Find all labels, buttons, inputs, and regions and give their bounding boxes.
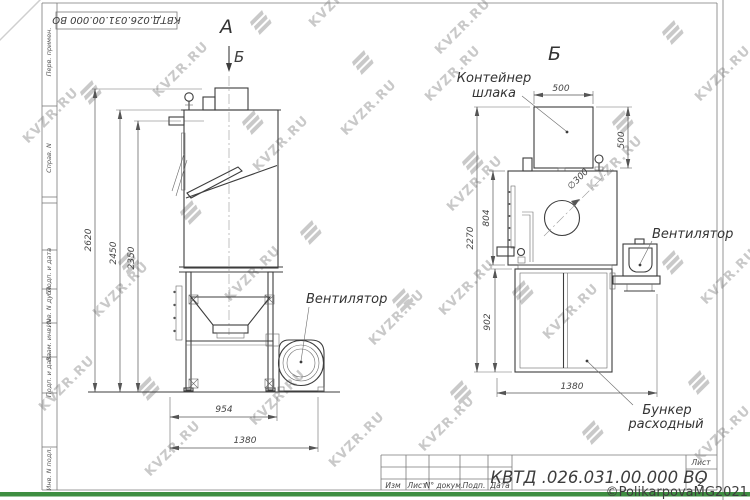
watermark-text: KVZR.RU xyxy=(436,257,498,319)
section-arrow: Б xyxy=(226,46,244,72)
watermark-logo-icon xyxy=(248,10,273,35)
boiler-side-outline xyxy=(88,88,340,392)
watermark-text: KVZR.RU xyxy=(247,367,309,429)
dim-500-top: 500 xyxy=(552,84,569,94)
dim-1380-left: 1380 xyxy=(234,436,257,446)
bunker-callout: Бункер расходный xyxy=(586,360,704,432)
tb-col-docnum: N° докум. xyxy=(425,481,464,490)
watermark-logo-icon xyxy=(350,50,375,75)
dim-2270: 2270 xyxy=(466,226,476,249)
container-label-line2: шлака xyxy=(472,86,516,101)
watermark-text: KVZR.RU xyxy=(432,0,494,58)
watermark-text: KVZR.RU xyxy=(222,243,284,305)
bunker-label-line2: расходный xyxy=(627,417,703,432)
fan-label-right: Вентилятор xyxy=(652,227,733,242)
top-stamp: КВТД.026.031.00.000 ВО xyxy=(52,12,181,29)
frame-field-podp-data-2: Подп. и дата xyxy=(45,353,53,397)
watermark-logo-icon xyxy=(78,80,103,105)
watermark-text: KVZR.RU xyxy=(90,259,152,321)
dim-2350: 2350 xyxy=(127,246,137,269)
left-view-label: А xyxy=(218,16,233,38)
watermark-text: KVZR.RU xyxy=(20,85,82,147)
drawing-canvas: KVZR.RU KVZR.RU KVZR.RU KVZR.RU KVZR.RU … xyxy=(0,0,750,500)
watermark-layer: KVZR.RU KVZR.RU KVZR.RU KVZR.RU KVZR.RU … xyxy=(0,0,750,480)
watermark-text: KVZR.RU xyxy=(698,246,750,308)
watermark-text: KVZR.RU xyxy=(692,43,750,105)
watermark-text: KVZR.RU xyxy=(338,77,400,139)
watermark-text: KVZR.RU xyxy=(416,393,478,455)
dim-902: 902 xyxy=(483,313,493,330)
right-view: Б xyxy=(457,43,734,432)
fan-label-left: Вентилятор xyxy=(306,292,387,307)
watermark-text: KVZR.RU xyxy=(326,409,388,471)
watermark-logo-icon xyxy=(136,376,161,401)
watermark-logo-icon xyxy=(686,370,711,395)
dim-954: 954 xyxy=(215,405,232,415)
container-label-line1: Контейнер xyxy=(457,71,531,86)
right-view-title: Б xyxy=(548,43,561,65)
bunker-label-line1: Бункер xyxy=(642,403,691,418)
top-stamp-designation: КВТД.026.031.00.000 ВО xyxy=(52,14,181,25)
fan-callout-left: Вентилятор xyxy=(300,292,388,363)
frame-field-perv-primen: Перв. примен. xyxy=(45,28,53,77)
dim-1380-right: 1380 xyxy=(561,382,584,392)
dim-2620: 2620 xyxy=(84,228,94,251)
watermark-text: KVZR.RU xyxy=(142,418,204,480)
watermark-logo-icon xyxy=(178,200,203,225)
left-view: А Б xyxy=(84,16,387,452)
watermark-logo-icon xyxy=(240,110,265,135)
watermark-logo-icon xyxy=(660,20,685,45)
watermark-logo-icon xyxy=(660,250,685,275)
container-callout: Контейнер шлака xyxy=(457,71,569,133)
watermark-logo-icon xyxy=(510,280,535,305)
tb-col-izm: Изм xyxy=(385,481,401,490)
dim-804: 804 xyxy=(482,209,492,226)
watermark-text: KVZR.RU xyxy=(150,39,212,101)
drawing-page: KVZR.RU KVZR.RU KVZR.RU KVZR.RU KVZR.RU … xyxy=(0,0,750,500)
dim-2450: 2450 xyxy=(109,241,119,264)
watermark-logo-icon xyxy=(580,420,605,445)
watermark-text: KVZR.RU xyxy=(692,403,750,465)
frame-field-sprav-n: Справ. N xyxy=(45,143,53,173)
dim-500-right: 500 xyxy=(617,131,627,148)
section-arrow-label: Б xyxy=(234,48,244,66)
fan-callout-right: Вентилятор xyxy=(639,227,734,266)
tb-col-podp: Подп. xyxy=(463,481,486,490)
watermark-text: KVZR.RU xyxy=(306,0,368,31)
watermark-logo-icon xyxy=(610,110,635,135)
copyright-text: ©PolikarpovaMG2021 xyxy=(606,485,748,500)
right-view-dimensions: 500 500 ∅300 2270 804 902 1380 xyxy=(466,84,657,397)
tb-sheet-label: Лист xyxy=(690,458,711,467)
watermark-logo-icon xyxy=(298,220,323,245)
watermark-text: KVZR.RU xyxy=(540,281,602,343)
frame-field-inv-podl: Инв. N подл. xyxy=(45,448,53,491)
